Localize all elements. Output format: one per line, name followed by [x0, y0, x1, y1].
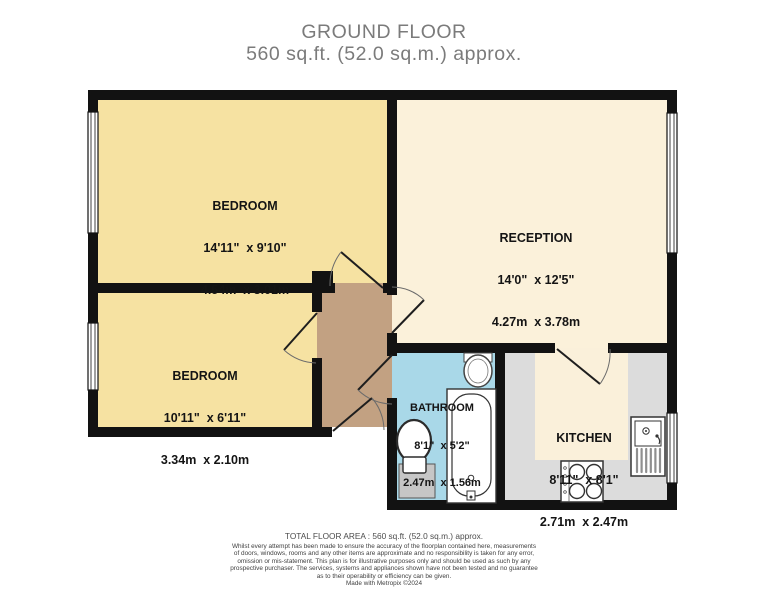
window-bedroom1-left [88, 112, 98, 233]
wall-reception-left-upper [387, 100, 397, 295]
room-dims-metric: 3.34m x 2.10m [161, 453, 249, 467]
room-name: BEDROOM [201, 199, 289, 213]
room-dims-imperial: 8'11" x 8'1" [540, 473, 628, 487]
disclaimer-line: Whilst every attempt has been made to en… [0, 543, 768, 550]
room-dims-imperial: 10'11" x 6'11" [161, 411, 249, 425]
window-bedroom2-left [88, 323, 98, 390]
window-kitchen-right [667, 413, 677, 483]
wall-reception-bottom-right [608, 343, 677, 353]
footer: TOTAL FLOOR AREA : 560 sq.ft. (52.0 sq.m… [0, 531, 768, 587]
room-dims-metric: 2.47m x 1.56m [403, 477, 481, 490]
wall-top [88, 90, 677, 100]
window-reception-right [667, 113, 677, 253]
kitchen-label: KITCHEN 8'11" x 8'1" 2.71m x 2.47m [540, 403, 628, 543]
room-dims-imperial: 8'1" x 5'2" [403, 440, 481, 453]
room-name: BEDROOM [161, 369, 249, 383]
room-dims-imperial: 14'0" x 12'5" [492, 273, 580, 287]
room-dims-imperial: 14'11" x 9'10" [201, 241, 289, 255]
room-dims-metric: 4.54m x 3.01m [201, 283, 289, 297]
wall-hall-left-lower [312, 358, 322, 427]
disclaimer-line: prospective purchaser. The services, sys… [0, 565, 768, 572]
disclaimer-line: omission or mis-statement. This plan is … [0, 558, 768, 565]
kitchen-sink-icon [631, 417, 665, 476]
room-name: RECEPTION [492, 231, 580, 245]
wall-bathroom-left [387, 398, 397, 500]
floorplan-drawing [0, 0, 768, 602]
bedroom-1-label: BEDROOM 14'11" x 9'10" 4.54m x 3.01m [201, 171, 289, 311]
total-floor-area: TOTAL FLOOR AREA : 560 sq.ft. (52.0 sq.m… [0, 531, 768, 541]
bedroom-2-label: BEDROOM 10'11" x 6'11" 3.34m x 2.10m [161, 341, 249, 481]
disclaimer-line: as to their operability or efficiency ca… [0, 573, 768, 580]
hallway-floor [317, 283, 392, 427]
room-name: BATHROOM [403, 402, 481, 415]
room-name: KITCHEN [540, 431, 628, 445]
reception-label: RECEPTION 14'0" x 12'5" 4.27m x 3.78m [492, 203, 580, 343]
bathroom-label: BATHROOM 8'1" x 5'2" 2.47m x 1.56m [403, 377, 481, 502]
credit-line: Made with Metropix ©2024 [0, 580, 768, 587]
wall-reception-bottom-left [387, 343, 555, 353]
room-dims-metric: 4.27m x 3.78m [492, 315, 580, 329]
room-dims-metric: 2.71m x 2.47m [540, 515, 628, 529]
wall-hall-left-upper [312, 283, 322, 312]
disclaimer-line: of doors, windows, rooms and any other i… [0, 550, 768, 557]
